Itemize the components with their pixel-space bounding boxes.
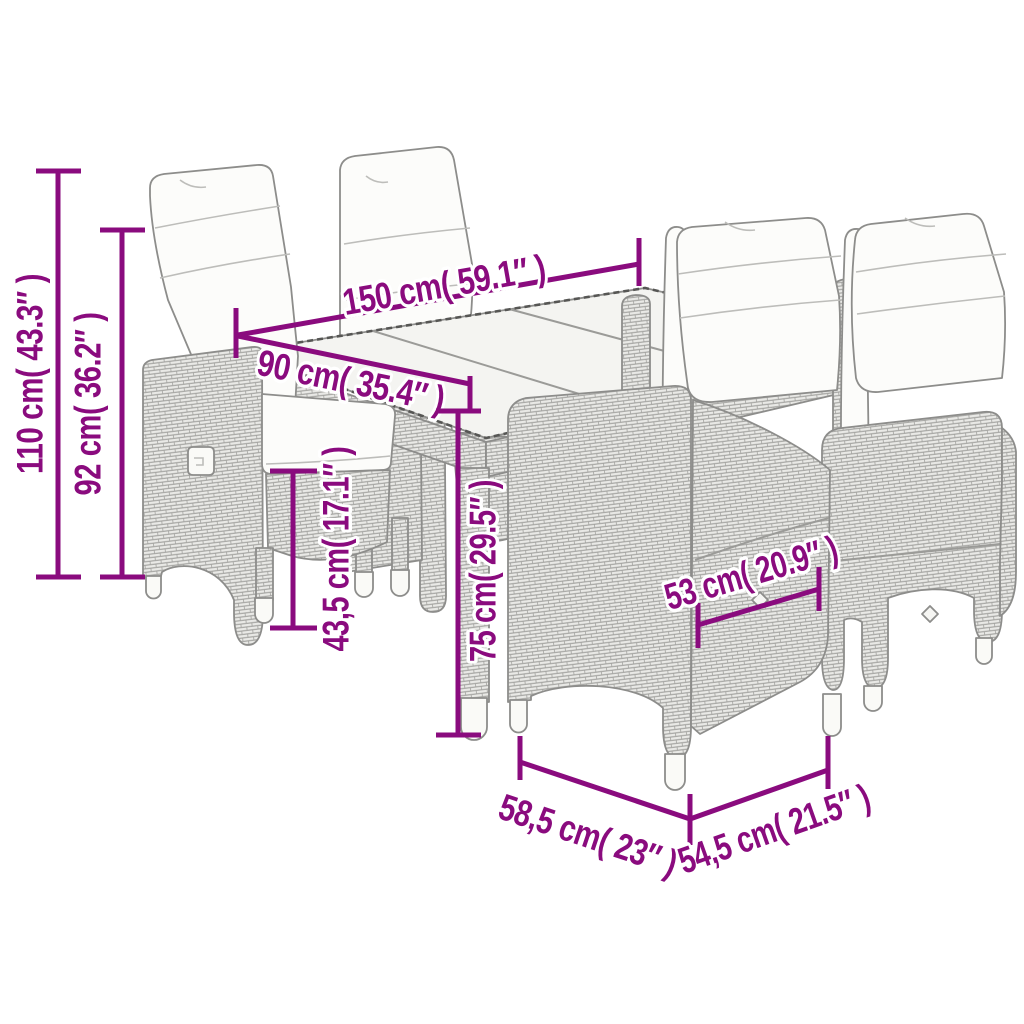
chair-back-panel bbox=[822, 412, 1002, 690]
dimension-chair-depth: 58,5 cm( 23″ ) bbox=[494, 736, 690, 884]
chair-back-cushion bbox=[677, 218, 840, 402]
recline-lever bbox=[188, 447, 214, 475]
chair-foot-cap bbox=[391, 570, 409, 596]
dimension-label-total-height: 110 cm( 43.3″ ) bbox=[10, 274, 51, 474]
chair-foot-cap bbox=[864, 686, 882, 711]
chair-foot-cap bbox=[255, 598, 273, 623]
chair-back-cushion bbox=[852, 214, 1005, 392]
chair-foot-cap bbox=[355, 572, 373, 597]
chair-front-right bbox=[822, 214, 1016, 736]
chair-leg bbox=[392, 518, 408, 574]
dimension-label-backrest-height: 92 cm( 36.2″ ) bbox=[68, 313, 109, 496]
chair-leg bbox=[256, 548, 273, 600]
chair-side-panel bbox=[143, 347, 263, 645]
dimension-label-chair-width: 54,5 cm( 21.5″ ) bbox=[673, 776, 875, 881]
chair-foot-cap bbox=[976, 638, 992, 664]
chair-foot-cap bbox=[823, 694, 841, 736]
dimension-label-seat-height: 43,5 cm( 17.1″ ) bbox=[316, 447, 357, 652]
chair-foot-cap bbox=[510, 700, 527, 733]
chair-back-panel bbox=[508, 386, 691, 758]
dimension-chair-width: 54,5 cm( 21.5″ ) bbox=[673, 736, 875, 882]
product-dimension-diagram: 110 cm( 43.3″ ) 92 cm( 36.2″ ) 150 cm( 5… bbox=[0, 0, 1024, 1024]
chair-foot-cap bbox=[146, 576, 161, 599]
chair-foot-cap bbox=[665, 754, 685, 790]
umbrella-hole bbox=[922, 606, 938, 622]
dimension-label-table-height: 75 cm( 29.5″ ) bbox=[463, 480, 504, 662]
dimension-label-chair-depth: 58,5 cm( 23″ ) bbox=[494, 786, 682, 884]
dimension-backrest-height: 92 cm( 36.2″ ) bbox=[68, 230, 146, 577]
chair-arm-edge bbox=[1000, 428, 1016, 616]
diagram-svg: 110 cm( 43.3″ ) 92 cm( 36.2″ ) 150 cm( 5… bbox=[0, 0, 1024, 1024]
